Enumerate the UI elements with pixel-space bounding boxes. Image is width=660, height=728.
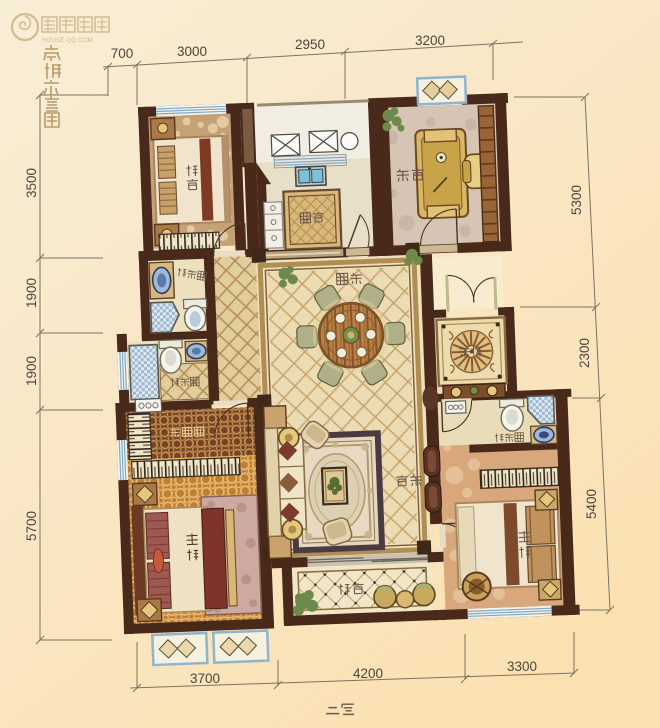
- svg-text:2300: 2300: [577, 338, 592, 368]
- svg-text:5300: 5300: [569, 185, 584, 215]
- svg-text:4200: 4200: [353, 666, 383, 681]
- svg-text:1900: 1900: [24, 278, 39, 308]
- svg-text:HOUSE.QQ.COM: HOUSE.QQ.COM: [42, 37, 93, 44]
- svg-text:2950: 2950: [295, 37, 325, 52]
- svg-text:3000: 3000: [177, 44, 207, 59]
- svg-text:3300: 3300: [507, 659, 537, 674]
- svg-text:5400: 5400: [584, 489, 599, 519]
- svg-text:700: 700: [111, 46, 134, 61]
- svg-text:5700: 5700: [24, 511, 39, 541]
- svg-text:3500: 3500: [24, 168, 39, 198]
- svg-text:3700: 3700: [190, 671, 220, 686]
- svg-text:1900: 1900: [24, 356, 39, 386]
- svg-text:3200: 3200: [415, 33, 445, 48]
